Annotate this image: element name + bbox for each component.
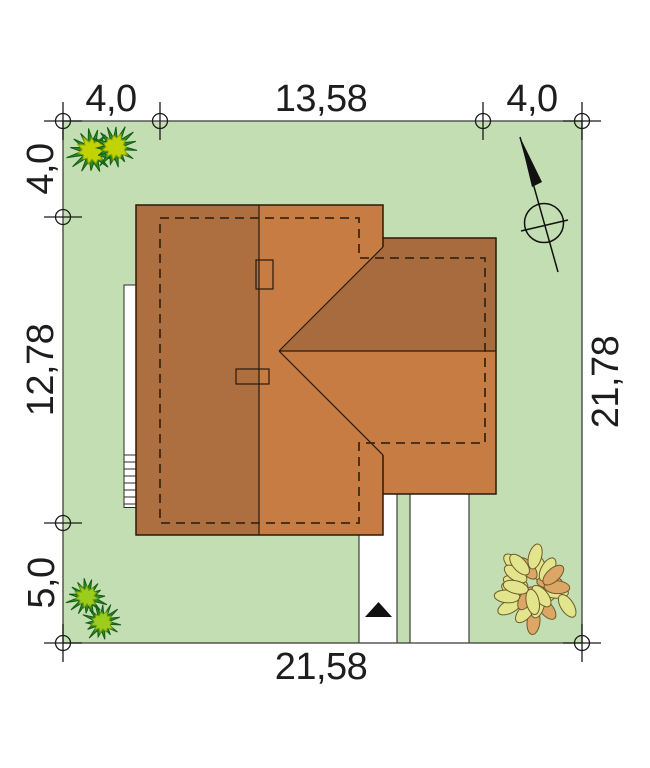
terrace-stairs [124, 285, 137, 508]
dim-top-middle: 13,58 [275, 78, 368, 120]
dim-top-right: 4,0 [506, 78, 557, 120]
house-roof [136, 205, 496, 535]
dim-left-bottom: 5,0 [21, 557, 63, 608]
terrace-slab [124, 285, 137, 508]
dim-left-middle: 12,78 [20, 324, 62, 417]
dim-bottom: 21,58 [275, 646, 368, 688]
dim-top-left: 4,0 [85, 78, 136, 120]
site-plan-drawing: 4,0 13,58 4,0 4,0 12,78 5,0 21,78 21,58 [0, 0, 650, 768]
driveway-strip [410, 494, 469, 643]
site-plan-page: 4,0 13,58 4,0 4,0 12,78 5,0 21,78 21,58 [0, 0, 650, 768]
roof-west-slope [136, 205, 259, 535]
dim-right-side: 21,78 [585, 336, 627, 429]
dim-left-top: 4,0 [20, 143, 62, 194]
